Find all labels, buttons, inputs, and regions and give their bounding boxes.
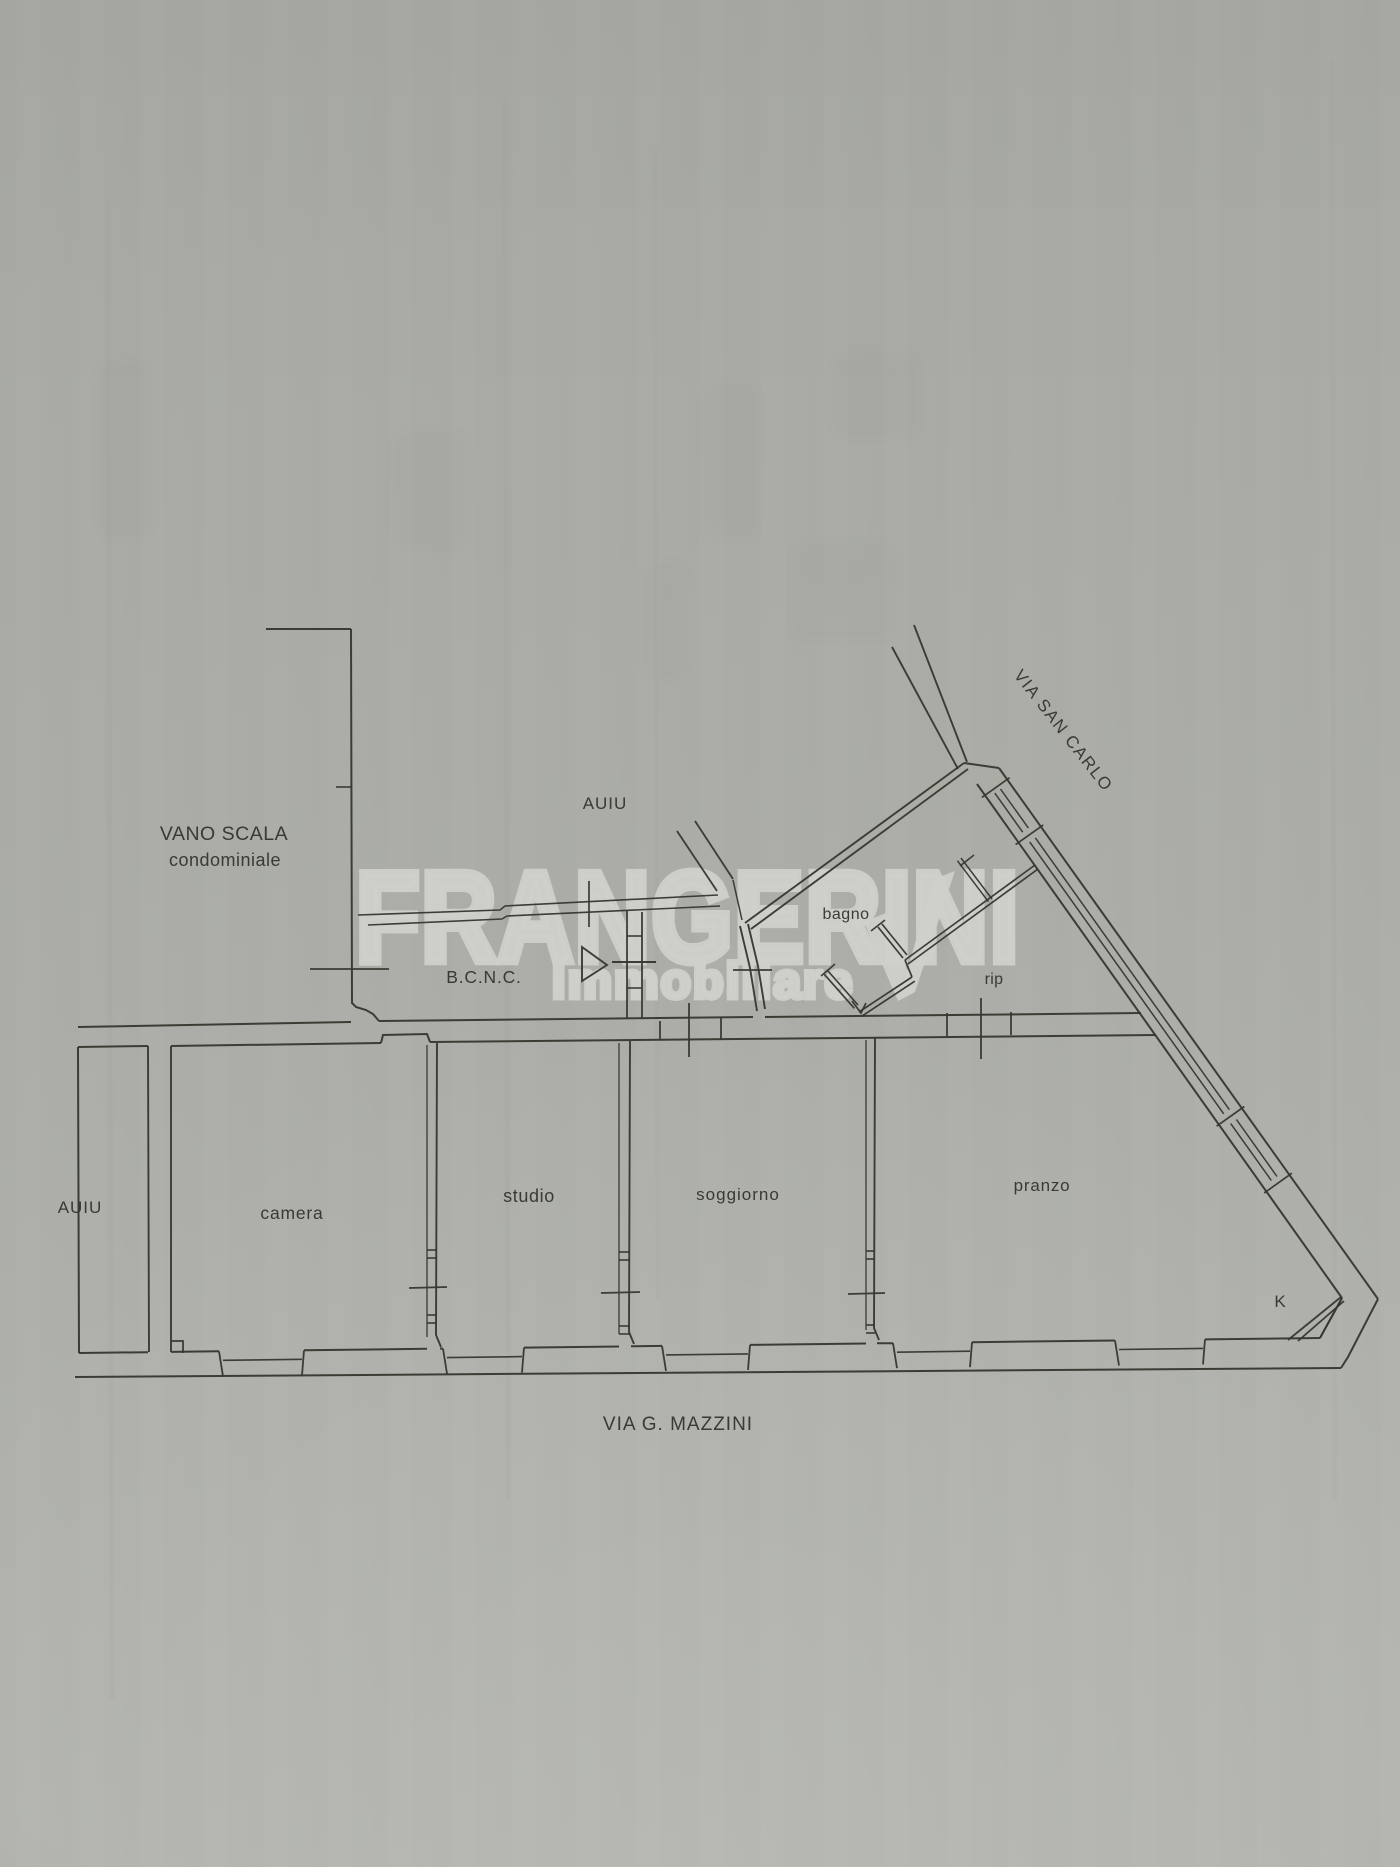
svg-text:condominiale: condominiale [169,850,281,870]
svg-text:studio: studio [503,1186,555,1206]
svg-text:immobiliare: immobiliare [552,953,855,1009]
svg-text:VANO SCALA: VANO SCALA [160,823,288,845]
svg-text:AUIU: AUIU [58,1198,103,1217]
svg-text:rip: rip [985,971,1004,988]
svg-text:soggiorno: soggiorno [696,1185,780,1204]
svg-text:B.C.N.C.: B.C.N.C. [446,967,521,987]
svg-text:pranzo: pranzo [1014,1176,1071,1195]
svg-text:camera: camera [260,1203,323,1223]
svg-text:VIA G. MAZZINI: VIA G. MAZZINI [603,1414,753,1435]
svg-text:bagno: bagno [823,906,870,923]
svg-text:AUIU: AUIU [583,794,628,813]
svg-text:K: K [1274,1292,1286,1311]
svg-text:VIA SAN CARLO: VIA SAN CARLO [1010,666,1117,795]
